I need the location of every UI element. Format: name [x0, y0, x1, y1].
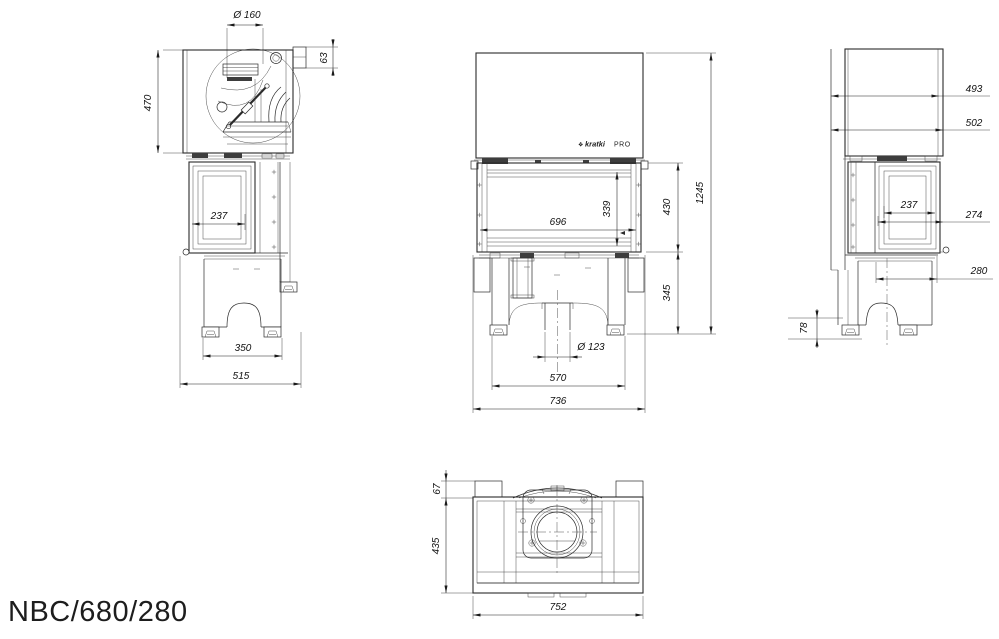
- technical-drawing: Ø 160 63 470 237 350: [0, 0, 999, 639]
- dim-glass-width-label: 696: [550, 217, 567, 228]
- dimension-foot-height: 78: [799, 309, 817, 348]
- right-view-hood: [845, 49, 943, 156]
- dim-top-depth-label: 435: [431, 537, 442, 554]
- dim-top-depth-label: 493: [966, 84, 983, 95]
- front-view: ❖ kratki PRO: [471, 53, 716, 413]
- right-bracket: [628, 258, 644, 292]
- dim-glass-depth-label: 237: [210, 211, 228, 222]
- dim-foot-spacing-label: 350: [235, 343, 252, 354]
- dimension-air-inlet-diameter: Ø 123: [533, 332, 605, 362]
- dim-firebox-height-label: 430: [662, 198, 673, 215]
- dim-door-depth-label: 274: [965, 210, 983, 221]
- handle-hinge: [943, 247, 949, 253]
- dim-glass-height-label: 339: [602, 200, 613, 217]
- air-control-knob: [183, 249, 189, 255]
- right-view-junction: [843, 156, 941, 161]
- dim-glass-depth-label: 237: [900, 200, 918, 211]
- brand-suffix: PRO: [614, 142, 631, 149]
- damper-mechanism: [226, 79, 290, 129]
- dim-overall-depth-label: 515: [233, 371, 250, 382]
- brand-name: kratki: [585, 140, 606, 149]
- left-mounting-tab: [475, 481, 502, 497]
- front-foot: [202, 327, 219, 337]
- dim-overall-height-label: 1245: [695, 181, 706, 204]
- pedestal-arch: [227, 303, 261, 327]
- dimension-glass-depth-right: 237: [884, 200, 935, 218]
- dimension-flue-diameter: Ø 160: [227, 10, 263, 78]
- left-foot: [490, 325, 507, 335]
- dim-hood-depth-label: 502: [966, 118, 983, 129]
- dimension-overall-height: 1245: [646, 53, 716, 334]
- pedestal-arch: [866, 303, 898, 325]
- dim-air-inlet-label: Ø 123: [576, 342, 605, 353]
- dimension-collar-offset: 63: [306, 39, 338, 76]
- dimension-glass-width: 696: [480, 217, 636, 230]
- side-hole: [217, 102, 227, 112]
- technical-drawing-sheet: Ø 160 63 470 237 350: [0, 0, 999, 639]
- dimension-hood-height: 470: [143, 50, 183, 153]
- front-foot: [900, 325, 917, 335]
- dimension-door-depth: 274: [878, 210, 990, 226]
- left-bracket: [474, 258, 490, 292]
- louvre-panel: [223, 64, 258, 75]
- dim-foot-height-label: 78: [799, 322, 810, 334]
- model-designation: NBC/680/280: [8, 596, 188, 629]
- knob-circle: [271, 53, 282, 64]
- left-view-pedestal: [196, 253, 288, 337]
- dimension-bracket-offset: 67: [432, 470, 475, 498]
- damper-collar: [293, 47, 306, 68]
- right-mounting-tab: [616, 481, 643, 497]
- dim-hood-height-label: 470: [143, 94, 154, 111]
- right-foot: [607, 325, 624, 335]
- dimension-glass-depth-left: 237: [192, 211, 245, 230]
- right-view-door: [848, 162, 949, 253]
- top-view: 67 435 752: [431, 470, 643, 619]
- dim-bracket-offset-label: 67: [432, 483, 443, 495]
- left-view-door: [183, 162, 278, 255]
- dimension-top-overall-width: 752: [473, 596, 643, 619]
- top-view-body: [473, 481, 643, 597]
- dimension-hood-depth: 502: [831, 118, 990, 130]
- dimension-foot-spacing: 350: [203, 338, 282, 360]
- right-view-pedestal: [788, 255, 938, 345]
- dimension-glass-height: 339: [602, 172, 617, 246]
- dim-leg-spacing-label: 570: [550, 373, 567, 384]
- front-hood: ❖ kratki PRO: [476, 53, 643, 158]
- dimension-firebox-height: 430: [646, 163, 683, 252]
- baffle-tray: [223, 122, 291, 144]
- front-base: [474, 252, 716, 372]
- dimension-leg-spacing: 570: [492, 336, 625, 390]
- right-side-view: 493 502 237 274 280 78: [788, 49, 993, 348]
- kratki-logo-icon: ❖: [578, 143, 583, 149]
- dim-collar-offset-label: 63: [319, 52, 330, 64]
- left-side-view: Ø 160 63 470 237 350: [143, 10, 338, 388]
- front-firebox: [471, 161, 648, 252]
- dimension-top-overall-depth: 435: [431, 498, 473, 593]
- door-handle: [620, 231, 625, 235]
- dim-top-width-label: 752: [550, 602, 567, 613]
- rear-bracket: [280, 282, 297, 292]
- rear-foot: [842, 325, 859, 335]
- dimension-overall-depth: 515: [180, 256, 301, 388]
- dimension-top-depth: 493: [831, 84, 990, 96]
- dimension-base-depth: 280: [876, 256, 993, 283]
- left-view-junction: [186, 153, 290, 159]
- dim-base-depth-label: 280: [970, 266, 988, 277]
- dim-overall-width-label: 736: [550, 396, 567, 407]
- dimension-base-height: 345: [662, 252, 678, 334]
- left-view-rear-panel: [280, 162, 297, 292]
- dim-base-height-label: 345: [662, 284, 673, 301]
- flue-collar: [513, 485, 602, 576]
- dim-flue-diameter-label: Ø 160: [232, 10, 261, 21]
- air-duct: [513, 258, 532, 298]
- rear-foot: [264, 327, 281, 337]
- rating-plate: [227, 77, 252, 81]
